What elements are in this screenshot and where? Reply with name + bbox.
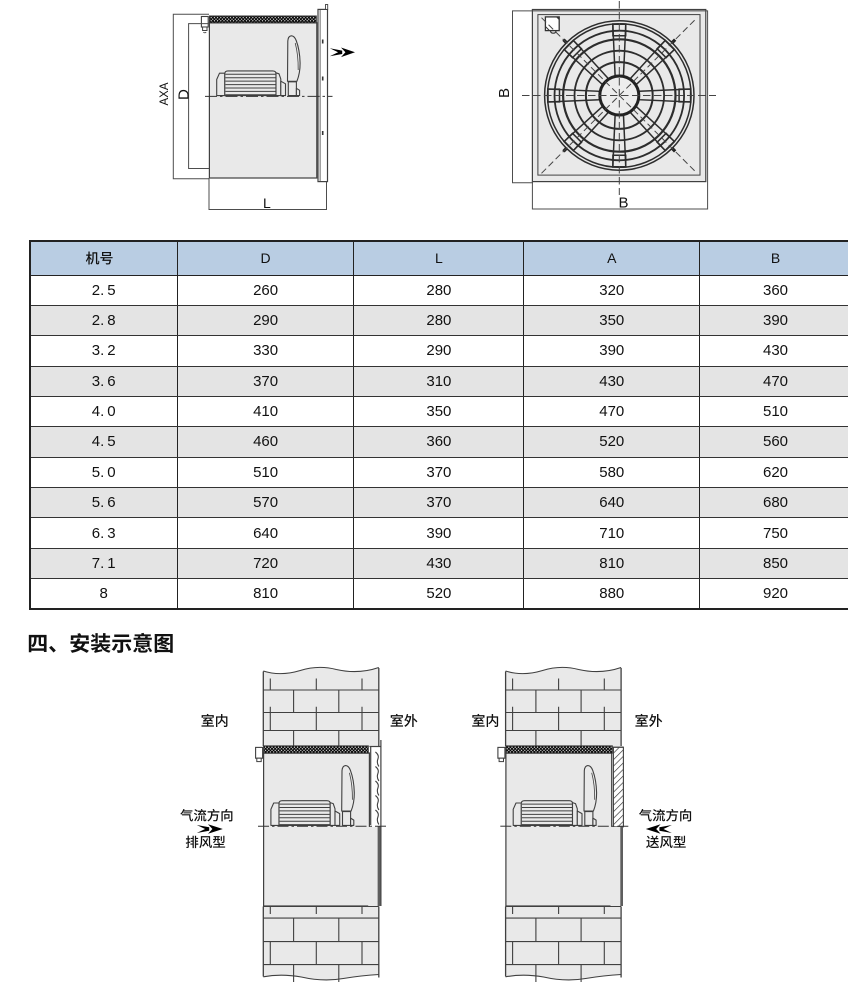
svg-text:L: L bbox=[263, 195, 271, 211]
svg-text:B: B bbox=[496, 88, 513, 98]
svg-text:AXA: AXA bbox=[159, 82, 171, 105]
svg-text:B: B bbox=[619, 195, 629, 212]
svg-text:D: D bbox=[176, 89, 193, 100]
